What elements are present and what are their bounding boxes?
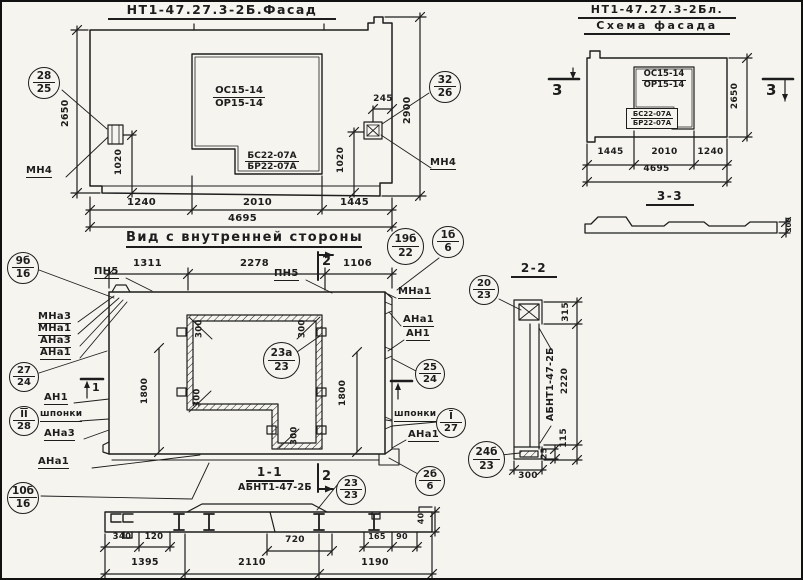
dim-1106: 1106 (330, 258, 385, 269)
dim-300-corner-b: 300 (290, 423, 299, 449)
insert-mark-ana3-lower: АНа3 (44, 428, 75, 441)
dim-1445: 1445 (327, 197, 382, 208)
dim-anchor-left: 1020 (115, 144, 125, 180)
callout-bottom: 6 (444, 242, 451, 254)
joint-mark-pn5-left: ПН5 (94, 266, 119, 279)
anchor-mark-right: МН4 (430, 157, 456, 170)
anchor-mark-left: МН4 (26, 165, 52, 178)
sill-mark-bottom: БР22-07А (240, 162, 304, 172)
callout-top: 9б (12, 256, 35, 268)
section-1-1-title: 1-1 (246, 466, 294, 482)
inner-view-title: Вид с внутренней стороны (126, 231, 362, 248)
callout-23a-23: 23а 23 (263, 342, 300, 379)
dim-90: 90 (388, 533, 416, 542)
callout-II-28: II 28 (9, 406, 39, 436)
callout-top: 10б (9, 486, 37, 498)
dim-720: 720 (274, 536, 316, 546)
dim-25: 25 (541, 442, 550, 464)
callout-bottom: 23 (274, 361, 289, 373)
callout-32-26: 32 26 (429, 71, 461, 103)
callout-top: 32 (434, 75, 457, 87)
sill-mark-bottom: БР22-07А (629, 119, 675, 127)
insert-mark-ana1: АНа1 (40, 347, 71, 360)
section-mark-1-left: 1 (92, 381, 100, 394)
dim-300-corner-tl: 300 (195, 316, 204, 342)
callout-10b-16: 10б 16 (7, 482, 39, 514)
callout-24b-23: 24б 23 (468, 441, 505, 478)
dim-40: 40 (418, 506, 427, 530)
dim-120: 120 (136, 533, 172, 542)
dim-300-corner-ml: 300 (193, 385, 202, 411)
callout-9b-16: 9б 16 (7, 252, 39, 284)
section-mark-3-left: 3 (552, 81, 562, 99)
facade-sill-mark: БС22-07А БР22-07А (240, 151, 304, 173)
callout-bottom: 25 (37, 83, 52, 95)
insert-mark-an1-right: АН1 (406, 328, 430, 341)
insert-mark-ana1-lower: АНа1 (38, 456, 69, 469)
callout-bottom: 23 (479, 460, 494, 472)
callout-bottom: 28 (17, 421, 31, 433)
joint-mark-pn5-right: ПН5 (274, 268, 299, 281)
schema-title-line2: Схема фасада (584, 20, 730, 35)
callout-27-24: 27 24 (9, 362, 39, 392)
section-3-3-depth: 300 (786, 212, 794, 238)
window-mark-top: ОС15-14 (213, 85, 265, 98)
callout-bottom: 26 (438, 87, 453, 99)
keys-label-left: шпонки (40, 410, 82, 422)
callout-top: I (440, 412, 461, 424)
sill-mark-top: БС22-07А (245, 151, 298, 162)
dim-1190: 1190 (350, 558, 400, 568)
facade-window-mark: ОС15-14 ОР15-14 (200, 85, 278, 109)
schema-dim-total: 4695 (634, 165, 679, 175)
callout-20-23: 20 23 (469, 275, 499, 305)
dim-300-corner-tr: 300 (298, 316, 307, 342)
callout-top: 28 (33, 71, 56, 83)
dim-2110: 2110 (227, 558, 277, 568)
callout-top: 19б (392, 234, 420, 246)
dim-1395: 1395 (120, 558, 170, 568)
window-mark-bottom: ОР15-14 (636, 81, 692, 91)
callout-bottom: 16 (16, 498, 31, 510)
dim-1240: 1240 (114, 197, 169, 208)
dim-height-right: 2900 (403, 90, 413, 130)
schema-window-mark: ОС15-14 ОР15-14 (636, 70, 692, 91)
window-mark-bottom: ОР15-14 (200, 98, 278, 110)
callout-19b-22: 19б 22 (387, 228, 424, 265)
callout-2b-6: 2б 6 (415, 466, 445, 496)
dim-315: 315 (562, 298, 572, 326)
callout-bottom: 23 (344, 490, 358, 502)
callout-top: 1б (437, 230, 460, 242)
dim-total-4695: 4695 (215, 213, 270, 224)
section-mark-2-bottom: 2 (322, 469, 331, 484)
keys-label-right: шпонки (394, 410, 436, 422)
callout-25-24: 25 24 (415, 359, 445, 389)
dim-340: 340 (104, 533, 140, 542)
schema-dim-2010: 2010 (642, 148, 687, 158)
callout-bottom: 16 (16, 268, 31, 280)
blueprint-page: НТ1-47.27.3-2Б.Фасад ОС15-14 ОР15-14 БС2… (0, 0, 803, 580)
facade-title: НТ1-47.27.3-2Б.Фасад (108, 3, 336, 20)
section-2-2-title: 2-2 (511, 262, 557, 278)
dim-anchor-right: 1020 (337, 142, 347, 178)
schema-title-line1: НТ1-47.27.3-2Бл. (578, 4, 736, 19)
section-mark-2-top: 2 (322, 254, 331, 269)
callout-28-25: 28 25 (28, 67, 60, 99)
callout-top: 23а (268, 348, 296, 360)
insert-mark-mna1-right: МНа1 (398, 286, 431, 299)
insert-mark-an1-left: АН1 (44, 392, 68, 405)
insert-mark-ana1-right: АНа1 (403, 314, 434, 327)
callout-top: 27 (13, 366, 34, 378)
dim-2220: 2220 (561, 363, 571, 399)
callout-bottom: 6 (427, 481, 434, 493)
dim-notch: 245 (368, 95, 398, 105)
callout-top: 24б (473, 447, 501, 459)
sill-mark-top: БС22-07А (631, 110, 673, 119)
callout-23-23: 23 23 (336, 475, 366, 505)
section-1-1-subtitle: АБНТ1-47-2Б (233, 483, 317, 493)
schema-dim-1240: 1240 (688, 148, 733, 158)
dim-1311: 1311 (120, 258, 175, 269)
dim-1800-left: 1800 (141, 371, 151, 411)
dim-115: 115 (560, 424, 570, 452)
callout-I-27: I 27 (436, 408, 466, 438)
dim-height-left: 2650 (61, 93, 71, 133)
callout-bottom: 22 (398, 247, 413, 259)
callout-top: 23 (340, 479, 361, 491)
callout-top: 25 (419, 363, 440, 375)
callout-bottom: 23 (477, 290, 491, 302)
callout-bottom: 24 (423, 374, 437, 386)
callout-top: II (13, 410, 34, 422)
dim-2010: 2010 (230, 197, 285, 208)
callout-bottom: 27 (444, 423, 458, 435)
schema-sill-mark: БС22-07А БР22-07А (626, 108, 678, 129)
insert-mark-ana1-right-lower: АНа1 (408, 429, 439, 442)
dim-300-bottom: 300 (511, 472, 545, 482)
dim-1800-right: 1800 (339, 373, 349, 413)
section-3-3-title: 3-3 (646, 190, 694, 206)
member-mark-abnt: АБНТ1-47-2Б (546, 338, 556, 430)
callout-top: 2б (419, 470, 440, 482)
callout-1b-6: 1б 6 (432, 226, 464, 258)
callout-bottom: 24 (17, 377, 31, 389)
schema-dim-height: 2650 (731, 76, 741, 116)
callout-top: 20 (473, 279, 494, 291)
schema-dim-1445: 1445 (588, 148, 633, 158)
section-mark-3-right: 3 (766, 81, 776, 99)
